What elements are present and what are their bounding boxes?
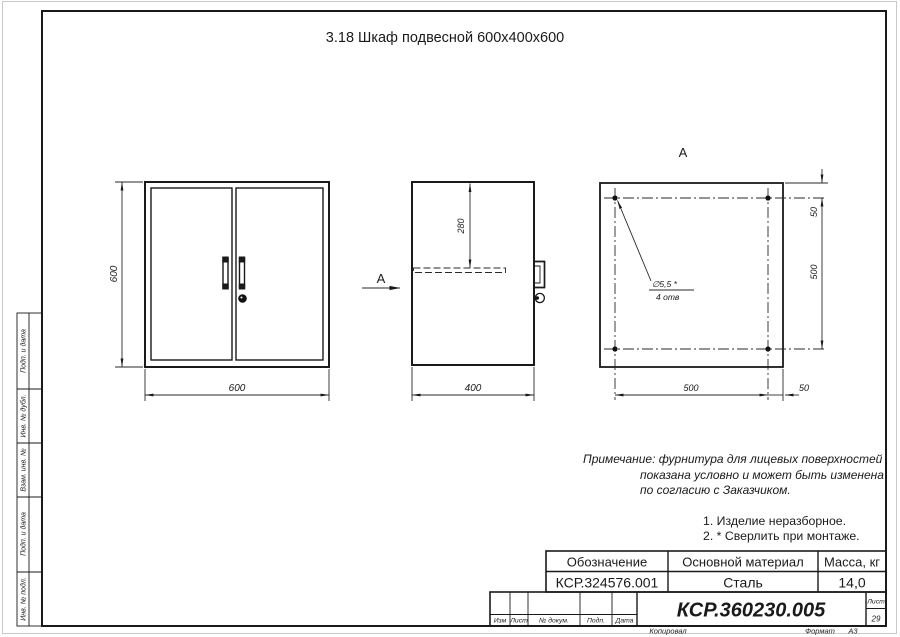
front-dim-height: 600 [109,265,120,282]
drawing-canvas: 3.18 Шкаф подвесной 600х400х600 Подп. и … [0,0,900,637]
tech-notes: 1. Изделие неразборное. 2. * Сверлить пр… [703,514,860,543]
view-a-label: А [679,145,688,160]
tech-note-2: 2. * Сверлить при монтаже. [703,529,860,543]
mass-header: Масса, кг [824,555,880,570]
side-lock-icon [535,293,544,302]
note-line-1: Примечание: фурнитура для лицевых поверх… [583,452,883,466]
format-value: А3 [847,627,858,636]
sheet-label: Лист [866,599,885,606]
designation-value: КСР.324576.001 [556,575,659,591]
data-label: Дата [615,618,634,625]
front-right-handle [239,257,245,290]
side-dim-shelf: 280 [456,218,466,234]
doc-label: № докум. [539,617,569,625]
izm-label: Изм [494,618,507,625]
stamp-label-inv-dubl: Инв. № дубл. [20,394,28,437]
view-a-dim-bottom-right: 50 [799,383,809,393]
drawing-sheet: 3.18 Шкаф подвесной 600х400х600 Подп. и … [0,0,900,637]
document-number: КСР.360230.005 [677,600,826,622]
designation-header: Обозначение [567,555,647,570]
section-arrow-label: А [377,271,386,286]
podp-label: Подп. [587,617,605,625]
list-label: Лист [509,618,528,625]
mass-value: 14,0 [838,575,865,591]
format-label: Формат [805,627,835,636]
hole-count-label: 4 отв [656,292,680,302]
view-a-dim-bottom-left: 500 [683,383,698,393]
material-value: Сталь [723,575,763,591]
page-title: 3.18 Шкаф подвесной 600х400х600 [326,30,564,46]
stamp-label-podp-data-1: Подп. и дата [20,329,28,373]
side-dim-width: 400 [465,383,482,394]
note-line-2: показана условно и может быть изменена [640,468,884,482]
stamp-label-inv-podl: Инв. № подл. [20,577,28,620]
front-lock-icon [238,294,247,303]
front-left-handle [222,257,228,290]
kopiroval-label: Копировал [649,627,687,636]
note-line-3: по согласию с Заказчиком. [640,483,791,497]
view-a-dim-right-top: 50 [809,207,819,217]
sheet-number: 29 [871,615,881,624]
stamp-label-vzam-inv: Взам. инв. № [21,448,28,492]
tech-note-1: 1. Изделие неразборное. [703,514,846,528]
hole-diameter-label: ∅5,5 * [652,279,678,289]
stamp-label-podp-data-2: Подп. и дата [20,512,28,556]
material-header: Основной материал [682,555,803,570]
front-dim-width: 600 [229,383,246,394]
view-a-dim-right-mid: 500 [809,264,819,279]
